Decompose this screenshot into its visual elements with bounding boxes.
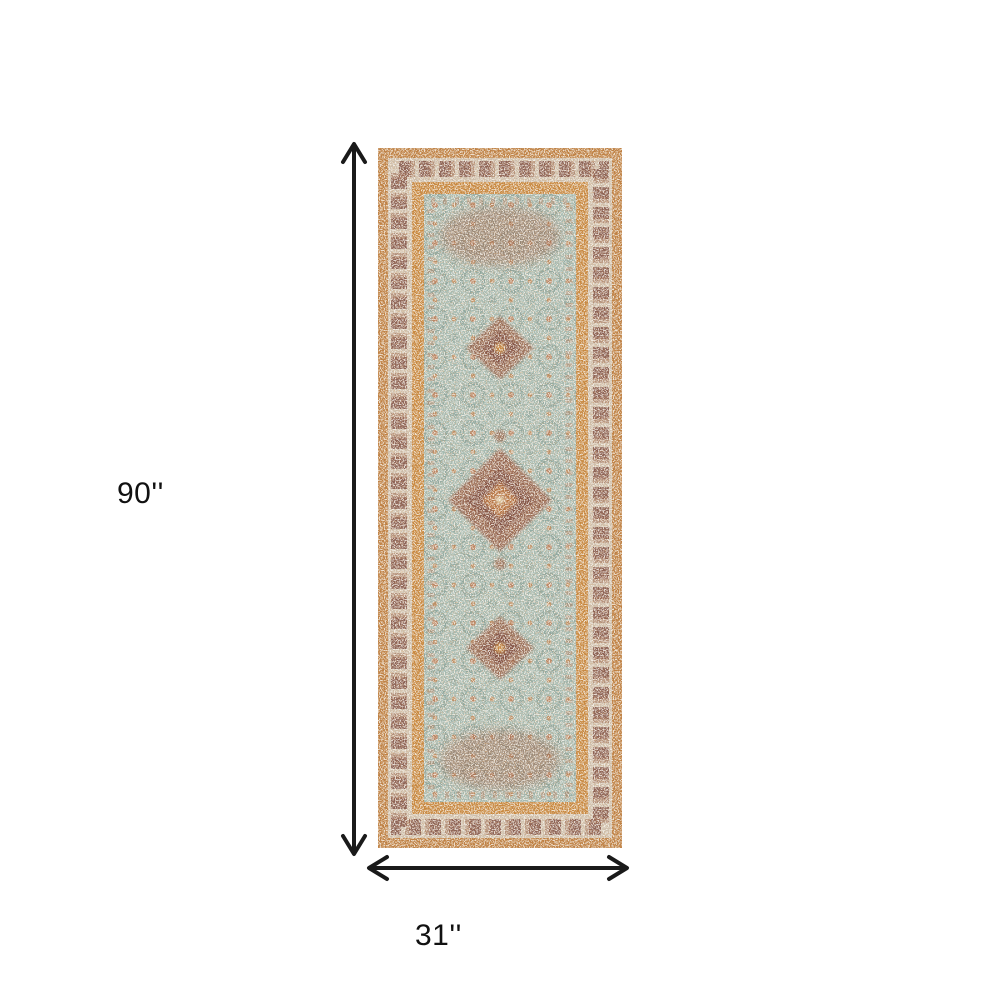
height-dimension-label: 90'' (117, 479, 164, 509)
width-dimension-arrow (369, 857, 627, 879)
width-dimension-label: 31'' (415, 921, 462, 951)
height-dimension-arrow (343, 144, 365, 854)
product-dimension-image: 90'' 31'' (0, 0, 1000, 1000)
rug-image (378, 148, 622, 848)
